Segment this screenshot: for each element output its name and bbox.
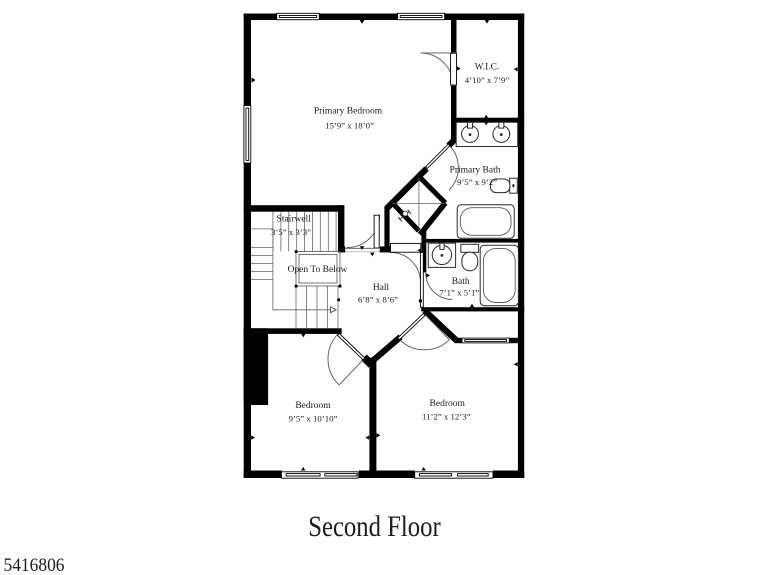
svg-text:11’2” x 12’3”: 11’2” x 12’3” [422, 412, 471, 422]
svg-text:Bath: Bath [452, 277, 470, 287]
svg-text:9’5” x 9’2”: 9’5” x 9’2” [457, 177, 497, 187]
svg-text:4’10” x 7’9”: 4’10” x 7’9” [465, 75, 510, 85]
svg-text:Bedroom: Bedroom [430, 399, 466, 409]
svg-text:Second Floor: Second Floor [308, 510, 441, 543]
svg-text:3’5” x 3’3”: 3’5” x 3’3” [271, 227, 311, 237]
svg-text:15’9” x 18’0”: 15’9” x 18’0” [325, 120, 374, 130]
svg-text:Bedroom: Bedroom [295, 401, 331, 411]
svg-text:Open To Below: Open To Below [288, 265, 348, 275]
svg-text:Primary Bath: Primary Bath [450, 166, 501, 176]
svg-text:Primary Bedroom: Primary Bedroom [314, 107, 383, 117]
svg-text:5416806: 5416806 [4, 555, 65, 575]
svg-text:Stairwell: Stairwell [277, 214, 312, 224]
svg-text:Hall: Hall [373, 283, 390, 293]
svg-text:6’8” x 8’6”: 6’8” x 8’6” [358, 294, 398, 304]
svg-text:7’1” x 5’1”: 7’1” x 5’1” [439, 287, 479, 297]
svg-text:W.I.C.: W.I.C. [475, 63, 500, 73]
svg-text:9’5” x 10’10”: 9’5” x 10’10” [289, 414, 338, 424]
